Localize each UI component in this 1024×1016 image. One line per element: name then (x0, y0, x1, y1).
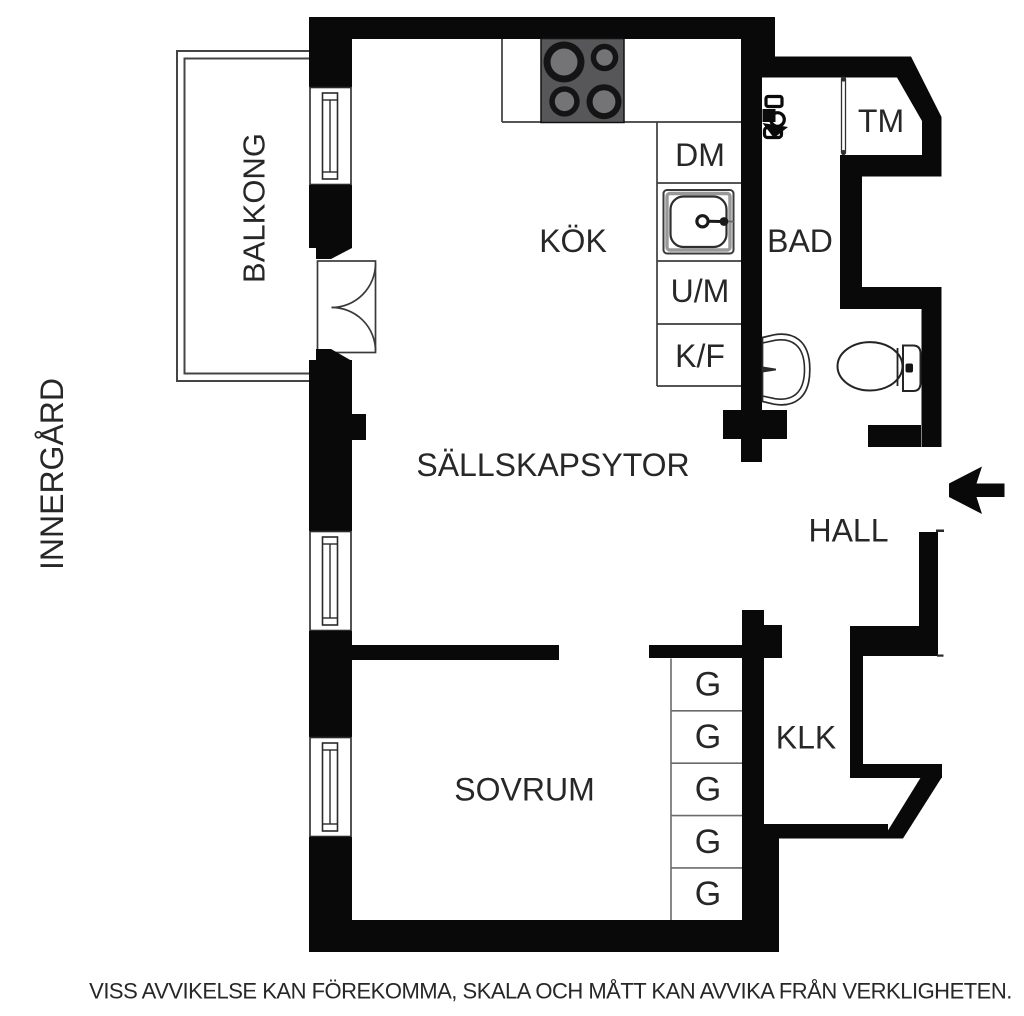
svg-text:G: G (695, 875, 721, 913)
svg-text:G: G (695, 718, 721, 756)
svg-text:SÄLLSKAPSYTOR: SÄLLSKAPSYTOR (416, 447, 689, 483)
svg-text:G: G (695, 823, 721, 861)
svg-text:G: G (695, 770, 721, 808)
svg-text:DM: DM (675, 137, 725, 173)
svg-text:KÖK: KÖK (539, 223, 607, 259)
svg-text:TM: TM (858, 103, 904, 139)
svg-text:INNERGÅRD: INNERGÅRD (34, 378, 70, 570)
svg-text:BALKONG: BALKONG (237, 133, 272, 283)
svg-text:HALL: HALL (808, 513, 888, 549)
svg-text:K/F: K/F (675, 338, 725, 374)
svg-text:G: G (695, 666, 721, 704)
svg-text:SOVRUM: SOVRUM (454, 772, 594, 808)
svg-text:U/M: U/M (671, 273, 730, 309)
svg-text:KLK: KLK (776, 720, 836, 756)
svg-text:BAD: BAD (767, 223, 833, 259)
svg-text:VISS AVVIKELSE KAN FÖREKOMMA,: VISS AVVIKELSE KAN FÖREKOMMA, SKALA OCH … (89, 979, 1012, 1004)
